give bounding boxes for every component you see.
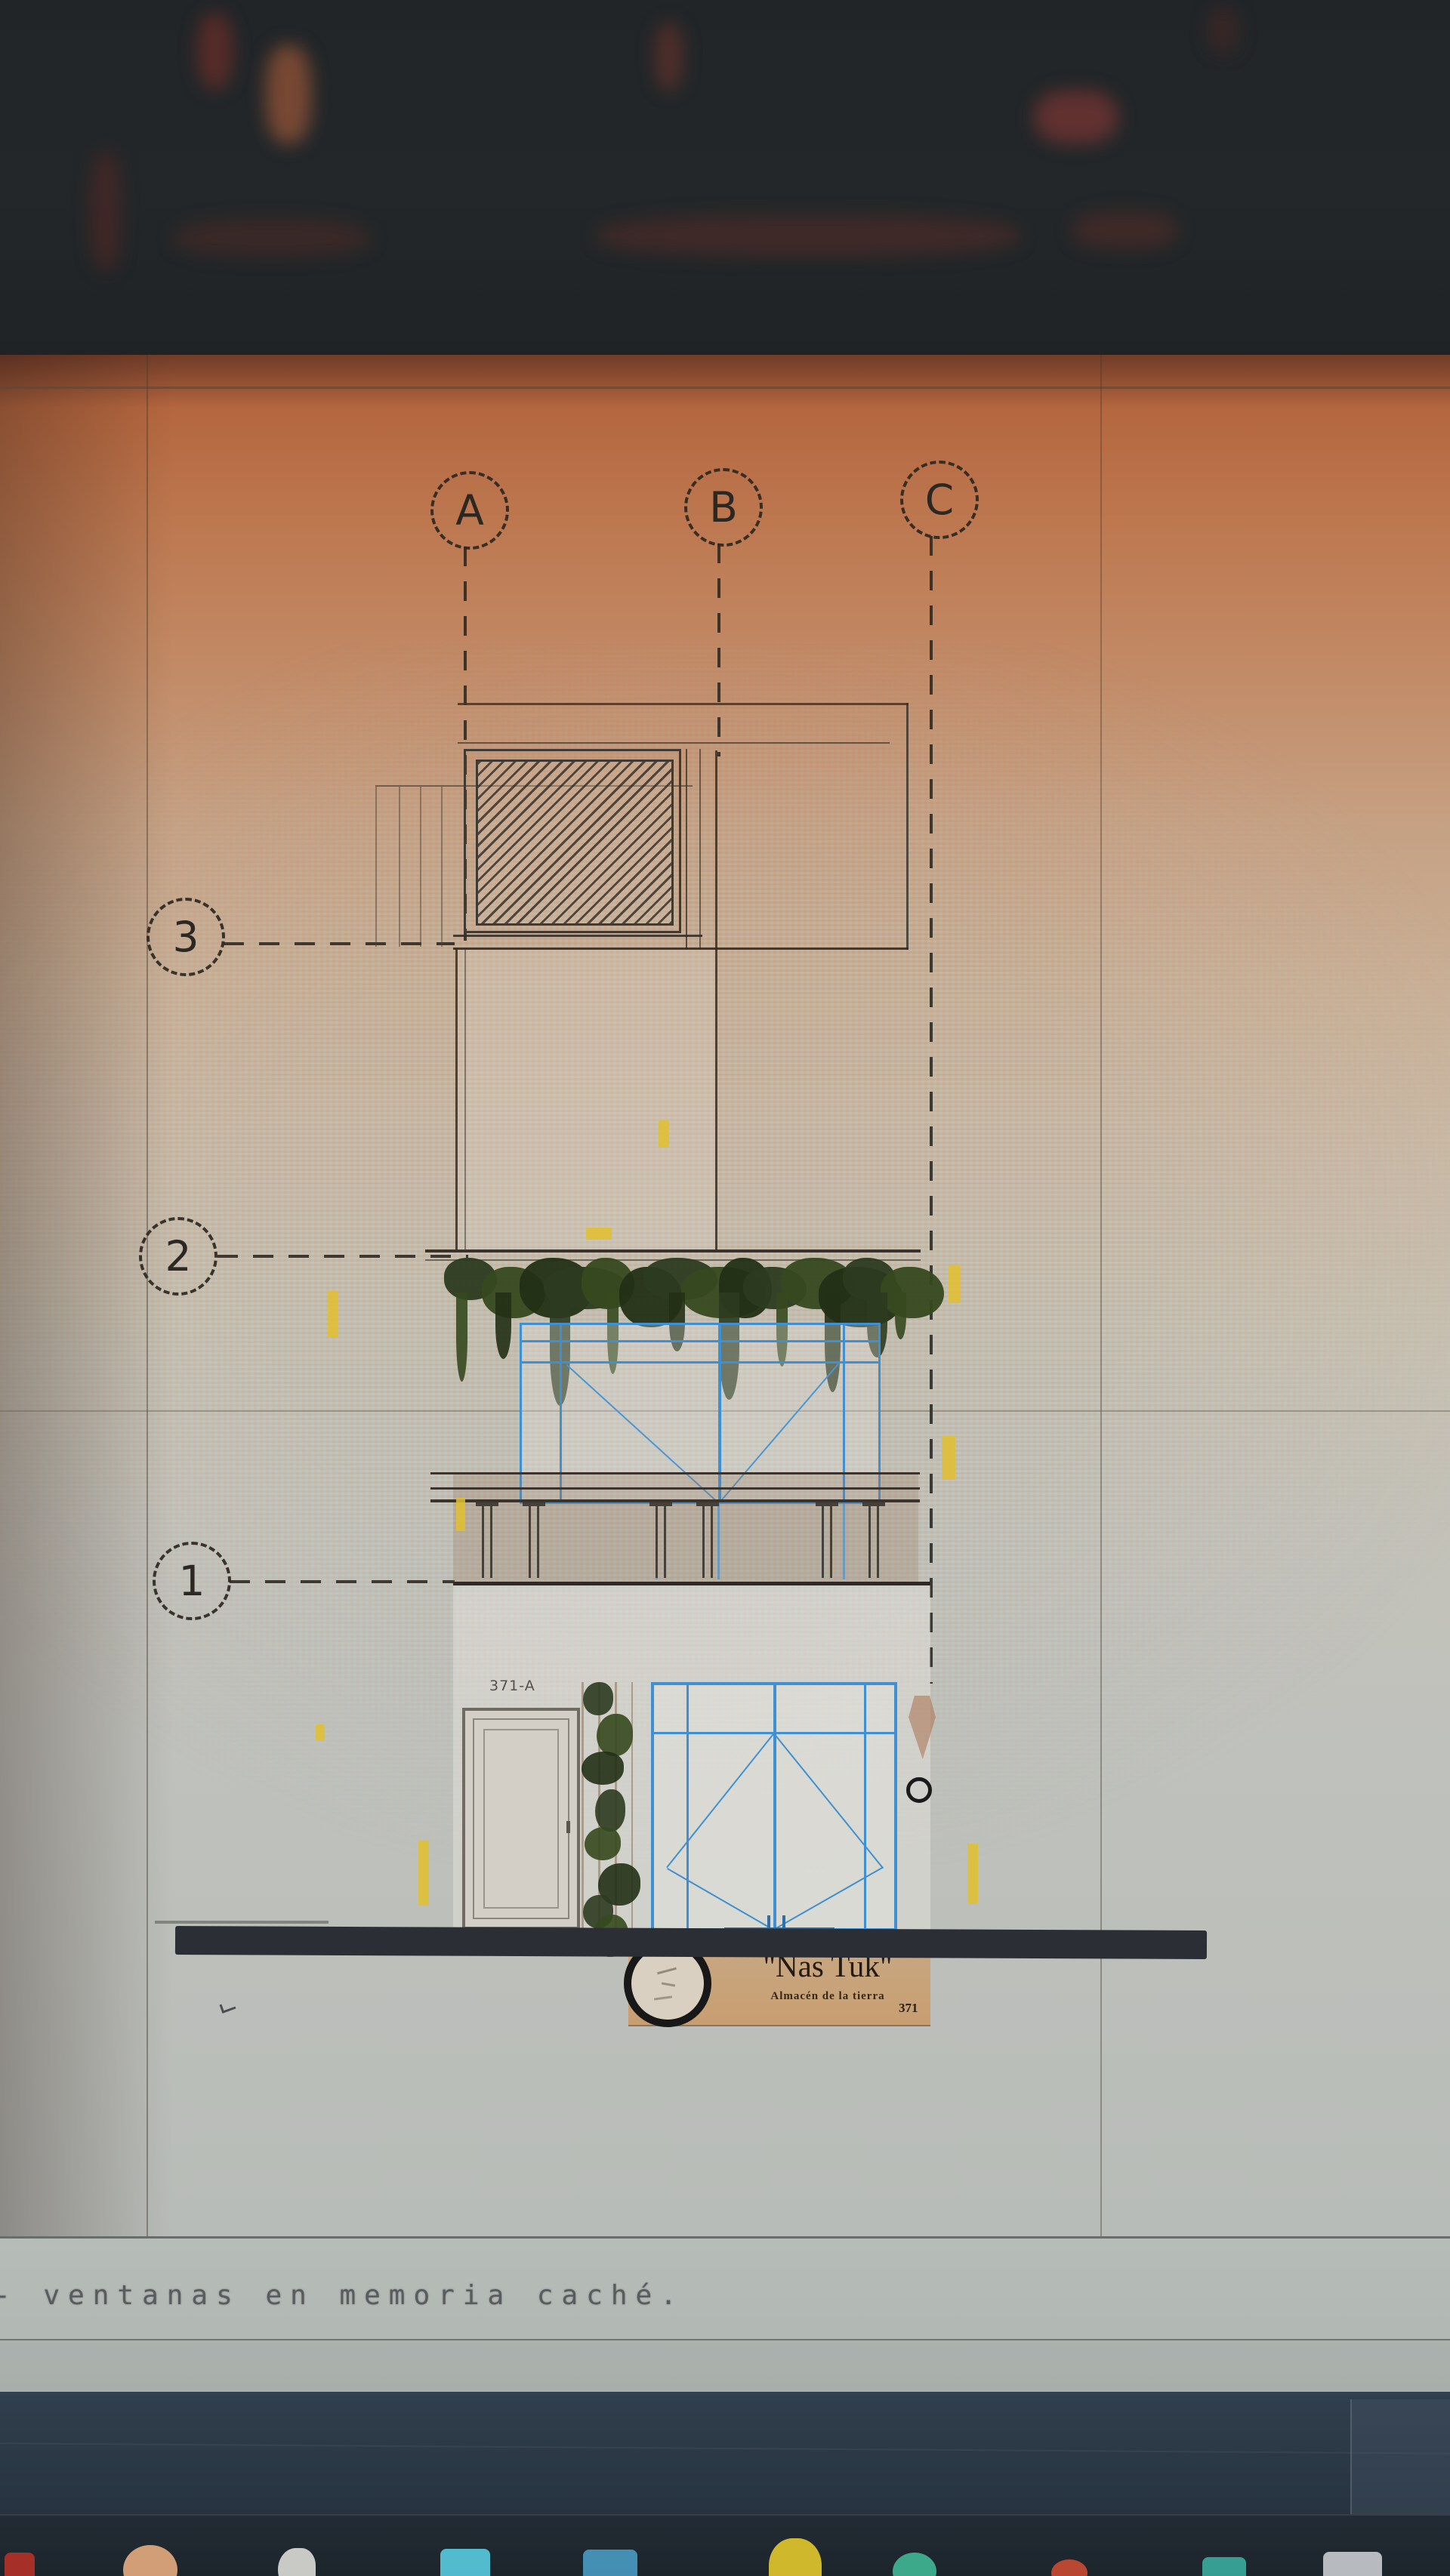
dimension-mark <box>949 1265 961 1303</box>
toolbar-blur-smudge <box>1208 8 1239 53</box>
unit-number-label: 371-A <box>489 1678 535 1694</box>
axis-label-a: A <box>455 486 484 535</box>
balcony-rail-3 <box>430 1499 920 1502</box>
balcony-post <box>656 1506 666 1578</box>
roof-ext-line-1 <box>375 787 377 947</box>
foliage-blob <box>881 1267 944 1318</box>
toolbar-blur-smudge <box>198 14 233 89</box>
foliage-strand <box>895 1293 906 1339</box>
toolbar-blur-smudge <box>656 23 683 91</box>
roof-window-right-frame-2 <box>699 749 701 950</box>
foliage-strand <box>456 1293 467 1382</box>
roof-window-right-frame-1 <box>686 749 687 950</box>
app-icon-yellow-round[interactable] <box>769 2538 822 2576</box>
balcony-rail-1 <box>430 1472 920 1474</box>
roof-window-sill-1 <box>453 935 702 937</box>
side-door-frame-inner-2 <box>483 1729 559 1909</box>
level-bubble-1: 1 <box>153 1542 231 1620</box>
vine-blob <box>583 1682 613 1715</box>
main-entry-door <box>651 1682 897 1931</box>
axis-line-b <box>717 544 720 756</box>
balcony-post <box>529 1506 539 1578</box>
app-icon-teal-circle[interactable] <box>893 2553 936 2576</box>
balcony-post-cap <box>523 1502 545 1506</box>
ground-bar <box>175 1926 1207 1959</box>
axis-line-c <box>930 536 933 1684</box>
cad-toolbar-band <box>0 0 1450 355</box>
vine-blob <box>595 1789 625 1832</box>
phone-photo-of-monitor: A B C 3 2 1 <box>0 0 1450 2576</box>
tower-left-wall-outer <box>455 948 458 1252</box>
toolbar-blur-smudge <box>1035 91 1118 143</box>
level-label-1: 1 <box>179 1557 205 1605</box>
windows-taskbar[interactable] <box>0 2514 1450 2576</box>
roof-dim-line-2 <box>458 742 890 744</box>
app-icon-redorange-circle[interactable] <box>1051 2559 1087 2576</box>
background-window-corner <box>1350 2399 1450 2514</box>
vine-blob <box>597 1714 633 1756</box>
level-label-3: 3 <box>173 913 199 961</box>
glazing-post-3 <box>843 1504 845 1579</box>
dimension-mark <box>586 1228 612 1240</box>
dimension-mark <box>659 1120 669 1148</box>
toolbar-blur-smudge <box>174 219 370 257</box>
desktop-band <box>0 2392 1450 2514</box>
axis-bubble-a: A <box>430 471 509 550</box>
level-label-2: 2 <box>165 1232 192 1280</box>
side-door <box>462 1708 580 1930</box>
balcony-post <box>702 1506 713 1578</box>
sheet-top-border-line <box>0 387 1450 389</box>
dimension-mark <box>328 1291 338 1338</box>
door-diamond-ur <box>773 1733 884 1869</box>
storefront-rail-2 <box>522 1361 878 1363</box>
axis-label-b: B <box>709 483 738 532</box>
app-icon-peach-circle[interactable] <box>123 2545 177 2576</box>
vine-trellis <box>582 1682 633 1931</box>
roof-right-edge <box>906 703 909 950</box>
balcony-post <box>482 1506 492 1578</box>
level-bubble-3: 3 <box>147 898 225 976</box>
sheet-top-shadow <box>0 355 1450 408</box>
vine-blob <box>582 1752 624 1785</box>
logo-mark <box>657 1967 677 1975</box>
ground-tick-mark <box>220 2000 236 2014</box>
door-diamond-lr <box>774 1866 884 1930</box>
roof-ext-line-3 <box>420 787 421 947</box>
toolbar-blur-smudge <box>91 151 121 272</box>
toolbar-blur-smudge <box>1072 211 1178 249</box>
dimension-mark <box>316 1724 325 1741</box>
level-line-1 <box>230 1580 455 1583</box>
level2-slab-line-1 <box>425 1249 921 1253</box>
roof-window-hatched-panel <box>476 760 674 926</box>
door-handle-post-2 <box>782 1915 785 1929</box>
balcony-post-cap <box>816 1502 838 1506</box>
app-icon-blue-square[interactable] <box>583 2550 637 2576</box>
desktop-faint-line <box>0 2442 1450 2454</box>
door-diamond-ll <box>667 1868 775 1931</box>
wall-lamp-circle <box>906 1777 932 1803</box>
vine-blob <box>585 1827 621 1860</box>
tower-right-wall <box>715 750 717 1252</box>
axis-label-c: C <box>925 476 954 524</box>
axis-bubble-b: B <box>684 468 763 547</box>
balcony-post-cap <box>862 1502 885 1506</box>
balcony-post-cap <box>649 1502 672 1506</box>
app-icon-white-blob[interactable] <box>278 2548 316 2576</box>
dimension-mark <box>967 1844 978 1904</box>
roof-ext-line-4 <box>441 787 443 947</box>
roof-ext-line-2 <box>399 787 400 947</box>
sidewalk-ledge-line <box>155 1921 329 1924</box>
app-icon-gray-square[interactable] <box>1323 2552 1382 2576</box>
app-icon-cyan-square[interactable] <box>440 2549 490 2576</box>
cmd-top-border <box>0 2236 1450 2239</box>
door-diamond-ul <box>666 1733 775 1868</box>
cmd-lower-strip <box>0 2340 1450 2392</box>
balcony-post-cap <box>476 1502 498 1506</box>
door-handle-post-1 <box>767 1915 770 1929</box>
dimension-mark <box>942 1436 955 1480</box>
app-icon-red-square[interactable] <box>5 2553 35 2576</box>
logo-mark <box>662 1982 675 1986</box>
balcony-post <box>822 1506 832 1578</box>
sign-street-number: 371 <box>899 2001 918 2016</box>
toolbar-blur-smudge <box>266 45 311 143</box>
tower-left-wall-inner <box>464 948 466 1252</box>
dimension-mark <box>418 1841 429 1906</box>
foliage-strand <box>495 1293 511 1359</box>
cmd-prefix: - <box>0 2280 19 2311</box>
level-line-2 <box>217 1255 468 1258</box>
door-stile-2 <box>864 1685 866 1928</box>
taskbar-icon-row <box>0 2514 1450 2576</box>
storefront-rail-1 <box>522 1340 878 1342</box>
level-bubble-2: 2 <box>139 1217 217 1296</box>
toolbar-blur-smudge <box>597 215 1020 257</box>
cad-drawing-canvas[interactable]: A B C 3 2 1 <box>0 355 1450 2236</box>
door-stile-center <box>773 1685 776 1928</box>
tower-wall-fill <box>458 950 715 1249</box>
app-icon-green-square[interactable] <box>1202 2557 1246 2576</box>
balcony-post-cap <box>696 1502 719 1506</box>
roof-dim-line-1 <box>458 703 909 705</box>
balcony-rail-2 <box>430 1487 920 1490</box>
door-stile-1 <box>686 1685 689 1928</box>
side-door-knob <box>566 1821 570 1833</box>
cmd-message: - ventanas en memoria caché. <box>0 2280 685 2311</box>
cad-command-line[interactable]: - ventanas en memoria caché. <box>0 2236 1450 2392</box>
logo-mark <box>654 1995 672 2000</box>
sheet-left-border-line <box>147 355 148 2236</box>
axis-bubble-c: C <box>900 461 979 539</box>
dimension-mark <box>456 1498 465 1531</box>
balcony-post <box>868 1506 879 1578</box>
glazing-post-2 <box>717 1504 720 1579</box>
